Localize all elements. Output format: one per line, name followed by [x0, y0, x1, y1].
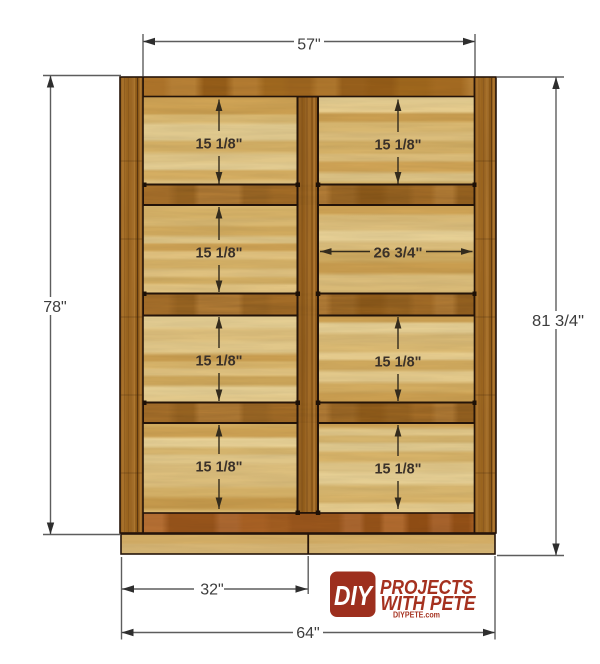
svg-text:64": 64"	[296, 625, 319, 642]
svg-text:15 1/8": 15 1/8"	[375, 354, 422, 371]
svg-text:15 1/8": 15 1/8"	[196, 459, 243, 476]
svg-text:32": 32"	[200, 582, 223, 599]
svg-text:DIY: DIY	[334, 580, 374, 611]
svg-text:15 1/8": 15 1/8"	[196, 245, 243, 262]
svg-text:57": 57"	[297, 37, 320, 54]
svg-text:15 1/8": 15 1/8"	[196, 353, 243, 370]
svg-text:78": 78"	[43, 299, 66, 316]
svg-text:15 1/8": 15 1/8"	[196, 136, 243, 153]
svg-text:26 3/4": 26 3/4"	[374, 245, 423, 262]
svg-text:DIYPETE.com: DIYPETE.com	[393, 611, 440, 620]
svg-text:15 1/8": 15 1/8"	[375, 461, 422, 478]
svg-text:81 3/4": 81 3/4"	[532, 313, 584, 330]
svg-text:15 1/8": 15 1/8"	[375, 137, 422, 154]
